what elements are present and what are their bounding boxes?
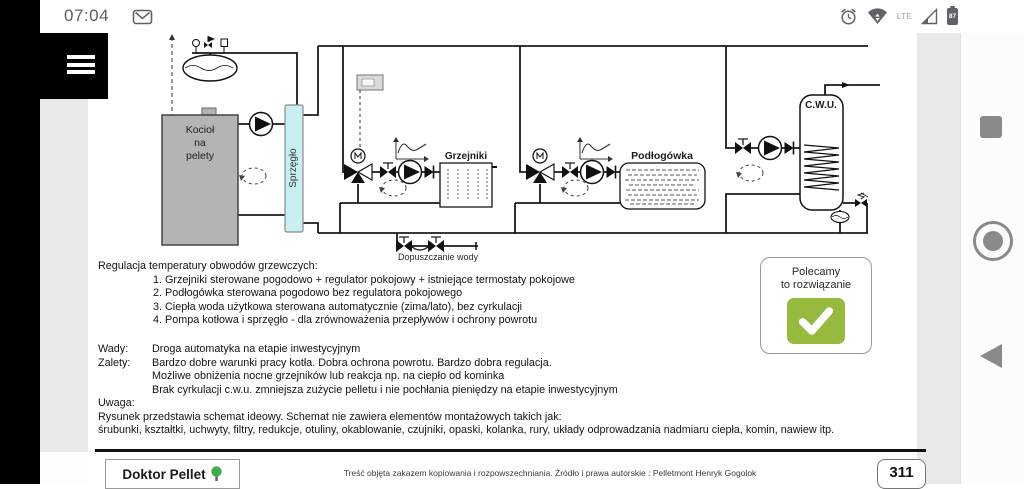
wifi-icon <box>867 8 888 25</box>
home-icon <box>983 231 1003 251</box>
coupling-label: Sprzęgło <box>287 118 301 218</box>
status-bar: 07:04 LTE 87 <box>40 0 1024 33</box>
hamburger-icon <box>67 55 95 78</box>
flue-line <box>169 34 175 115</box>
floor-heating-loop <box>620 163 705 209</box>
note-label: Uwaga: <box>98 397 868 411</box>
tree-icon <box>210 466 223 482</box>
regulation-item: 1. Grzejniki sterowane pogodowo + regula… <box>153 274 758 288</box>
floor-heating-label: Podłogówka <box>622 150 702 162</box>
shutoff-valve-icon <box>380 163 396 178</box>
radiator <box>440 163 497 207</box>
pros-cons-section: Wady: Droga automatyka na etapie inwesty… <box>98 343 798 397</box>
check-valve-icon <box>785 142 794 155</box>
battery-icon: 87 <box>947 8 958 25</box>
network-type-label: LTE <box>897 12 912 21</box>
check-valve-icon <box>607 166 616 179</box>
note-section: Uwaga: Rysunek przedstawia schemat ideow… <box>98 397 868 438</box>
shutoff-valve-icon <box>562 163 578 178</box>
gmail-notification-icon <box>132 9 153 30</box>
recents-button[interactable] <box>980 116 1002 138</box>
clock-time: 07:04 <box>64 6 109 26</box>
circulation-arrow-icon <box>379 180 406 196</box>
safety-valve-icon <box>855 193 868 207</box>
page-footer-gap <box>40 452 88 484</box>
regulation-title: Regulacja temperatury obwodów grzewczych… <box>98 260 758 274</box>
regulation-item: 3. Ciepła woda użytkowa sterowana automa… <box>153 301 758 315</box>
cons-text: Droga automatyka na etapie inwestycyjnym <box>152 343 360 357</box>
shutoff-valve-icon <box>428 237 444 252</box>
radiator-pump-icon <box>399 161 422 184</box>
menu-button[interactable] <box>40 33 108 99</box>
radiators-label: Grzejniki <box>426 151 506 162</box>
recommendation-text: Polecamy to rozwiązanie <box>761 266 871 292</box>
regulation-item: 4. Pompa kotłowa i sprzęgło - dla zrówno… <box>153 314 758 328</box>
note-line: śrubunki, kształtki, uchwyty, filtry, re… <box>98 424 868 438</box>
signal-icon <box>921 8 938 25</box>
status-icons: LTE 87 <box>839 0 958 33</box>
shutoff-valve-icon <box>396 237 412 252</box>
android-nav-bar <box>960 33 1024 484</box>
copyright-text: Treść objęta zakazem kopiowania i rozpow… <box>250 468 850 478</box>
cons-label: Wady: <box>98 343 152 357</box>
shutoff-valve-icon <box>735 139 751 154</box>
mixing-valve-icon <box>344 149 372 183</box>
regulation-item: 2. Podłogówka sterowana pogodowo bez reg… <box>153 287 758 301</box>
expansion-vessel-icon <box>183 36 237 81</box>
dhw-tank <box>800 95 868 223</box>
checkmark-icon <box>787 298 845 344</box>
mixing-valve-icon <box>526 149 554 183</box>
pros-line: Brak cyrkulacji c.w.u. zmniejsza zużycie… <box>152 384 618 398</box>
camera-cutout <box>0 0 40 484</box>
brand-name: Doktor Pellet <box>122 467 205 482</box>
room-controller-icon <box>357 75 383 148</box>
circulation-arrow-icon <box>736 165 763 181</box>
pros-line: Możliwe obniżenia nocne grzejników lub r… <box>152 370 618 384</box>
floor-pump-icon <box>581 161 604 184</box>
recommendation-badge: Polecamy to rozwiązanie <box>760 257 872 354</box>
back-button[interactable] <box>980 344 1002 368</box>
boiler-label: Kocioł na pelety <box>162 124 238 163</box>
note-line: Rysunek przedstawia schemat ideowy. Sche… <box>98 411 868 425</box>
pros-line: Bardzo dobre warunki pracy kotła. Dobra … <box>152 357 618 371</box>
battery-percent: 87 <box>949 13 956 20</box>
page-number-badge: 311 <box>877 459 926 489</box>
weather-curve-icon <box>577 137 613 162</box>
home-button[interactable] <box>973 221 1013 261</box>
weather-curve-icon <box>393 137 429 162</box>
dhw-label: C.W.U. <box>791 100 851 111</box>
footer-divider <box>95 449 926 452</box>
brand-logo: Doktor Pellet <box>105 459 240 489</box>
pros-label: Zalety: <box>98 357 152 398</box>
check-valve-icon <box>425 166 434 179</box>
circulation-arrow-icon <box>561 180 588 196</box>
dhw-pump-icon <box>759 137 782 160</box>
alarm-icon <box>839 7 858 26</box>
battery-nub <box>950 6 955 8</box>
dhw-flow-arrow <box>842 82 850 88</box>
circulation-arrow-icon <box>239 168 266 184</box>
boiler-pump-icon <box>250 113 273 136</box>
regulation-section: Regulacja temperatury obwodów grzewczych… <box>98 260 758 328</box>
